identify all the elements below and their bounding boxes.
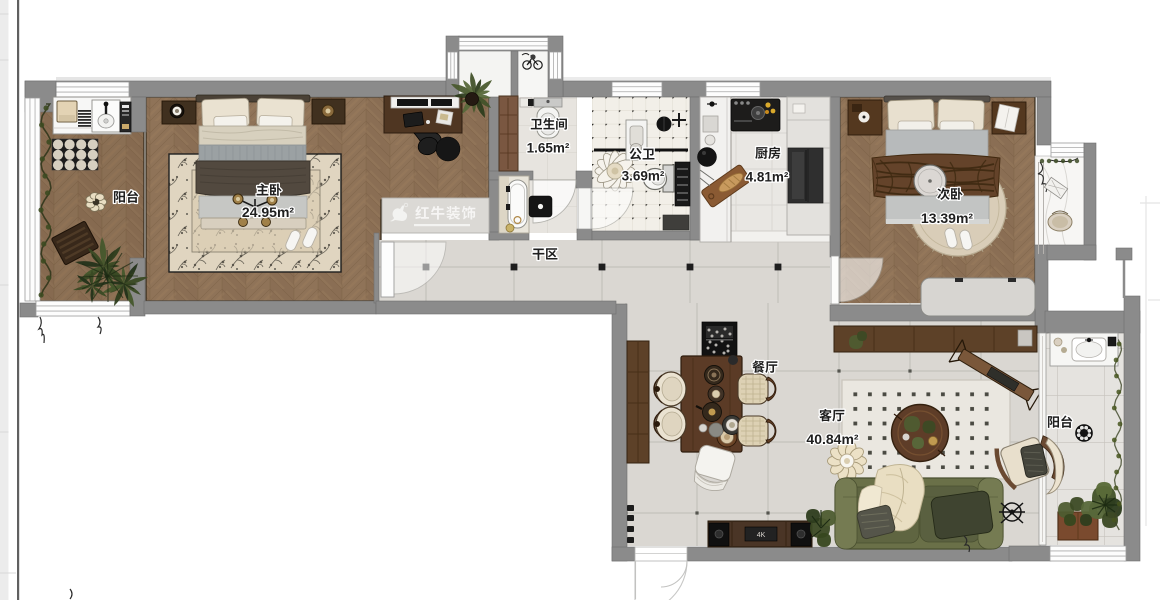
svg-text:4.81m²: 4.81m² — [746, 170, 789, 185]
svg-text:3.69m²: 3.69m² — [622, 169, 665, 184]
svg-text:4K: 4K — [757, 532, 766, 539]
svg-text:13.39m²: 13.39m² — [921, 210, 973, 226]
svg-text:1.65m²: 1.65m² — [527, 141, 570, 156]
svg-text:24.95m²: 24.95m² — [242, 204, 294, 220]
svg-text:40.84m²: 40.84m² — [806, 431, 858, 447]
